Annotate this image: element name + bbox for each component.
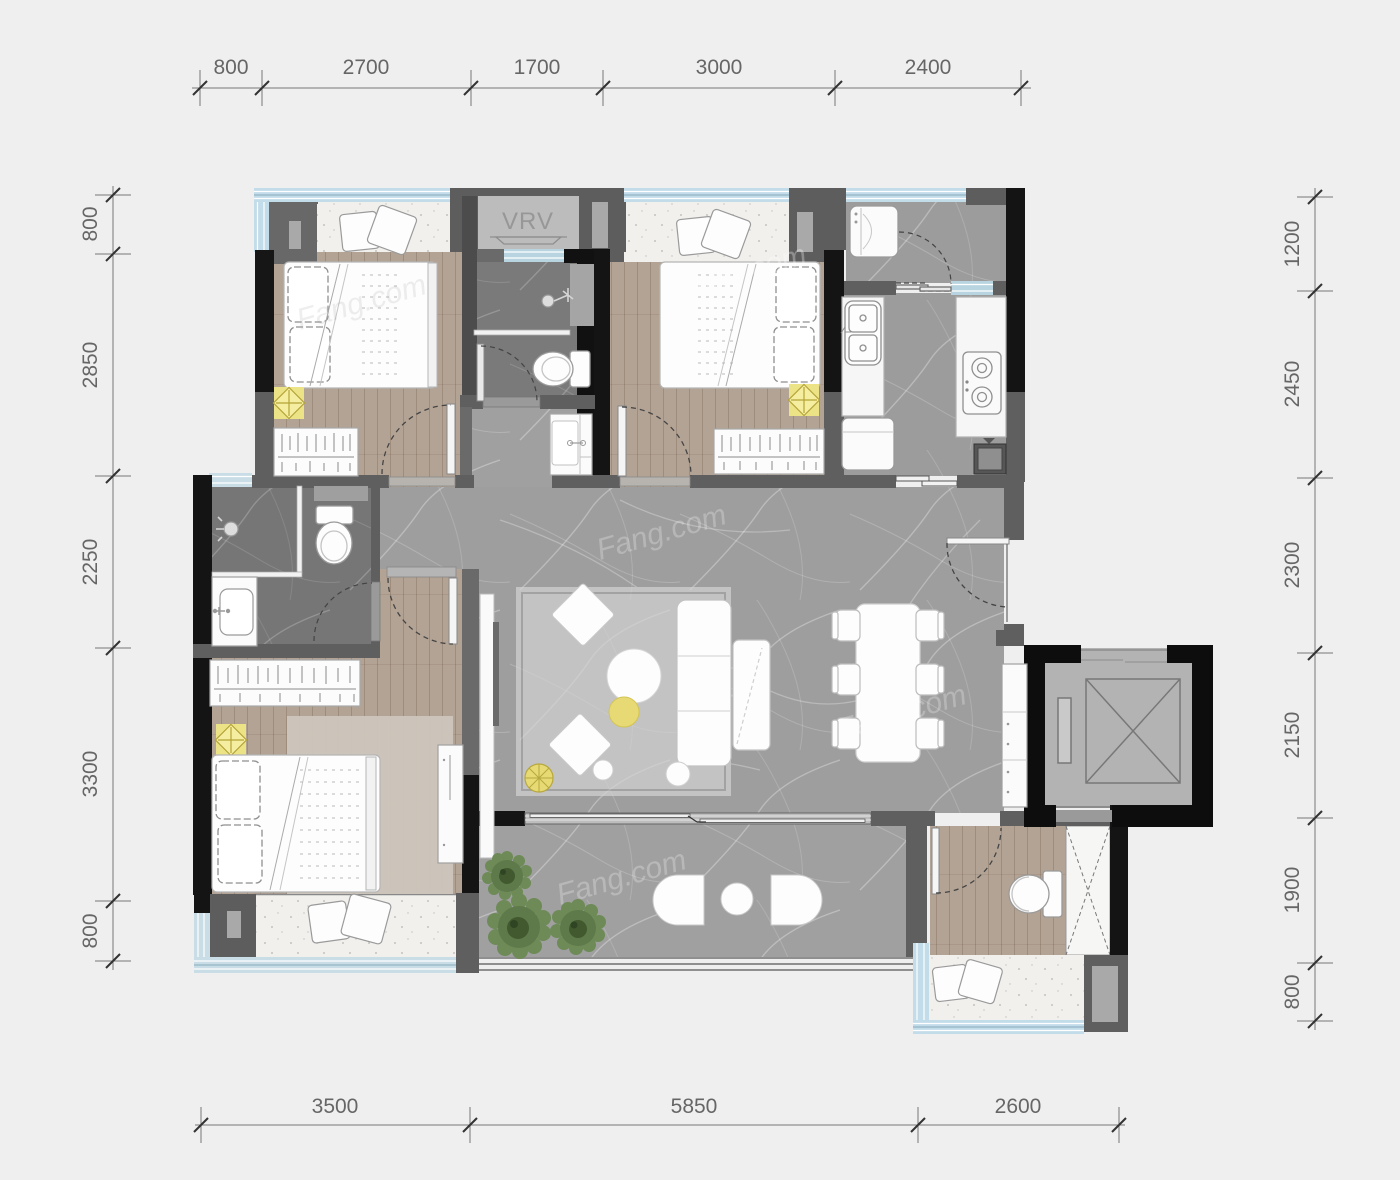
svg-text:2850: 2850 (79, 342, 102, 389)
svg-text:2450: 2450 (1281, 361, 1304, 408)
svg-text:2300: 2300 (1281, 542, 1304, 589)
svg-text:800: 800 (213, 56, 248, 79)
svg-text:2150: 2150 (1281, 712, 1304, 759)
svg-text:5850: 5850 (671, 1095, 718, 1118)
svg-text:2250: 2250 (79, 539, 102, 586)
svg-text:3500: 3500 (312, 1095, 359, 1118)
svg-text:3000: 3000 (696, 56, 743, 79)
svg-text:1700: 1700 (514, 56, 561, 79)
svg-text:1900: 1900 (1281, 867, 1304, 914)
svg-text:2400: 2400 (905, 56, 952, 79)
svg-text:1200: 1200 (1281, 221, 1304, 268)
svg-text:2700: 2700 (343, 56, 390, 79)
svg-text:800: 800 (79, 206, 102, 241)
svg-text:VRV: VRV (502, 208, 554, 235)
svg-text:3300: 3300 (79, 751, 102, 798)
svg-text:800: 800 (1281, 974, 1304, 1009)
svg-text:2600: 2600 (995, 1095, 1042, 1118)
svg-text:800: 800 (79, 913, 102, 948)
